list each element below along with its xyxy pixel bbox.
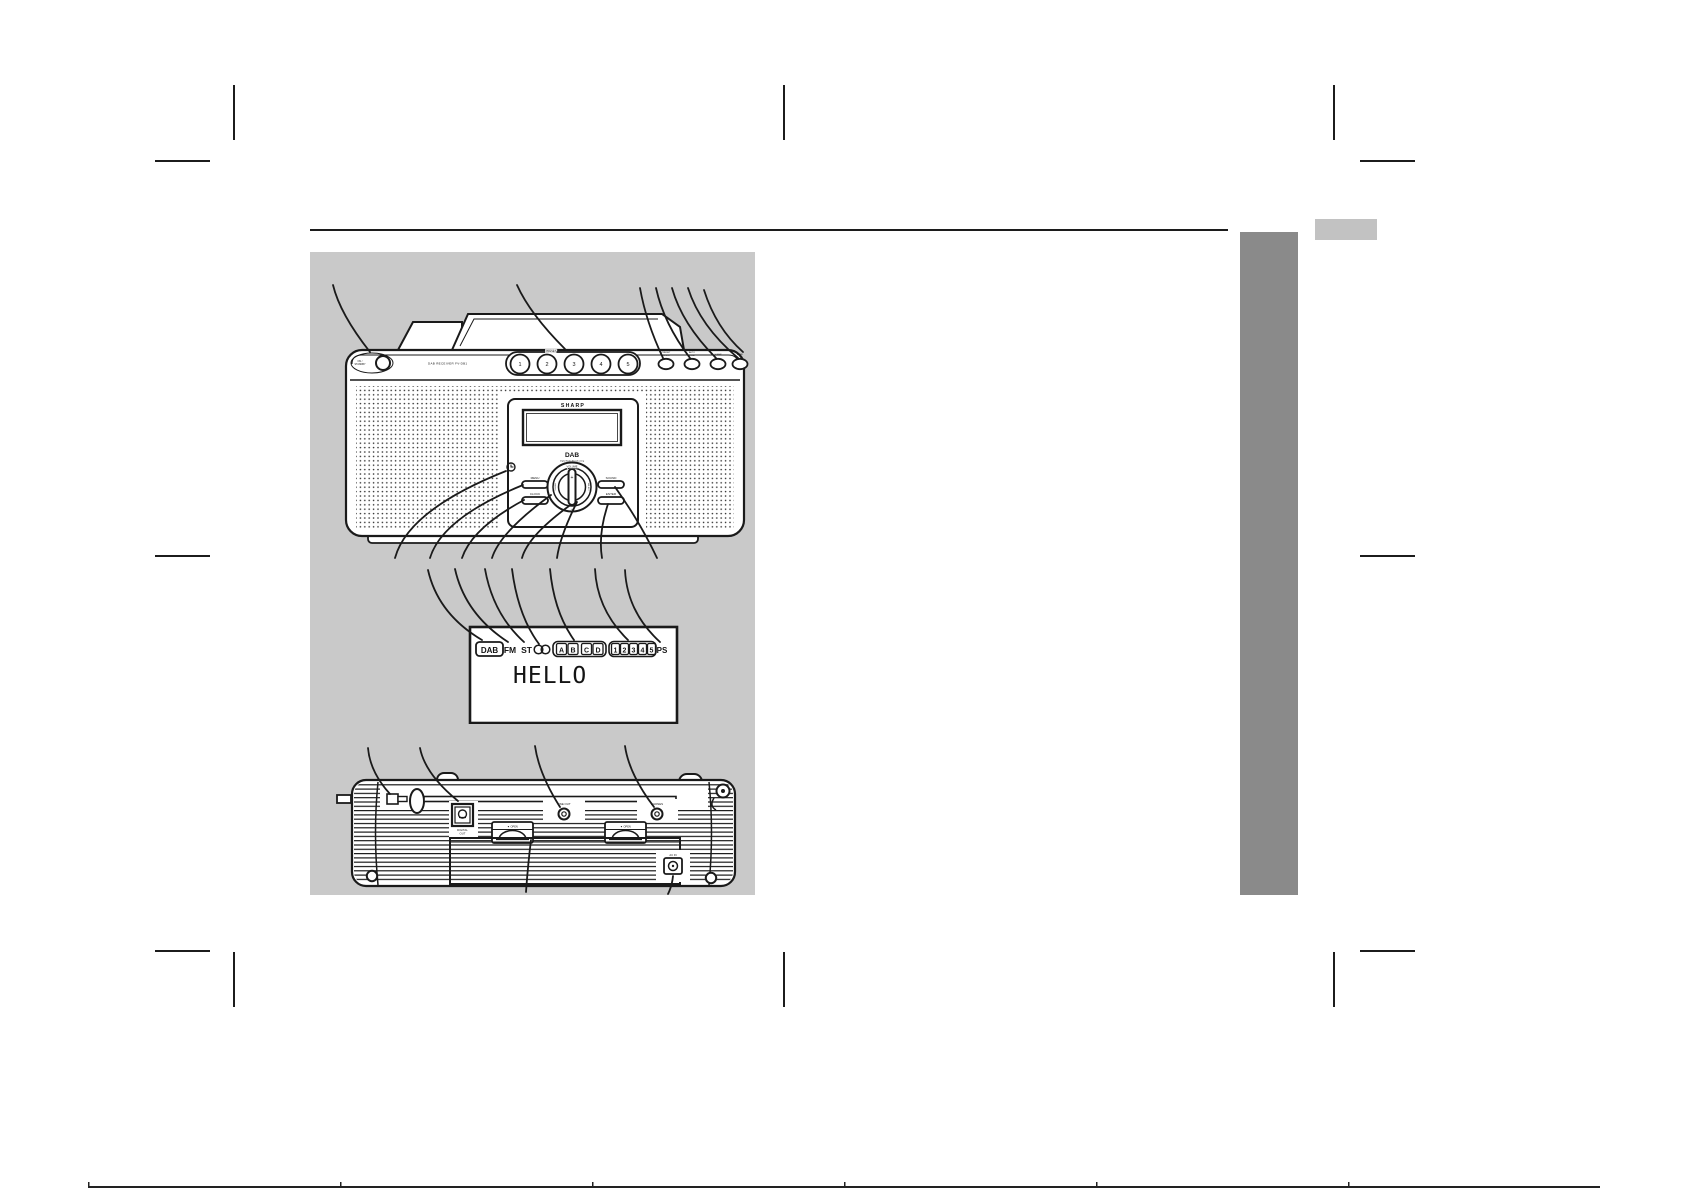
latch-right-label: ▼ OPEN [620,825,631,829]
tuning-label: TUNING [555,483,557,492]
rear-view-diagram: DIGITAL OUT LINE OUT PHONES ▼ OPEN [310,724,755,895]
crop-mark-left-1 [155,160,210,162]
preset-3: 3 [572,362,575,368]
crop-mark-bottom-left [233,952,235,1007]
ps-indicator: PS [657,646,668,655]
btn3-l1: SLEEP [714,354,722,356]
crop-mark-bottom-center [783,952,785,1007]
digit-2: 2 [623,648,627,655]
digit-3: 3 [632,648,636,655]
fm-indicator: FM [504,645,516,655]
btn4-l1: BAND [737,353,743,356]
btn2-l1: AUTO [689,351,695,354]
digit-indicators: 1 2 3 4 5 [609,642,656,657]
st-indicator: ST [521,645,533,655]
preset-button-group: PRESET 1 2 3 4 5 [506,349,640,375]
page-bottom-edge [88,1182,1600,1188]
clock-label: CLOCK [530,492,540,496]
preset-1: 1 [518,362,521,368]
letter-a: A [559,648,564,655]
display-view-diagram: DAB FM ST A B C D [310,564,755,724]
crop-mark-bottom-right [1333,952,1335,1007]
preset-2: 2 [545,362,548,368]
sound-label: SOUND [606,476,618,480]
crop-mark-right-2 [1360,555,1415,557]
digit-4: 4 [641,648,645,655]
section-sidebar [1240,232,1298,895]
volume-tuning-knob: VOLUME + − TUNING SELECT [548,463,597,512]
carry-handle [398,314,684,350]
digit-1: 1 [614,648,618,655]
enter-label: ENTER [606,492,617,496]
letter-c: C [584,648,589,655]
battery-latch-right: ▼ OPEN [605,822,646,843]
letter-b: B [570,648,575,655]
model-text: DAB RECEIVER FV-DB1 [428,362,467,366]
digit-5: 5 [650,648,654,655]
header-rule [310,229,1228,231]
diagram-panel: ON / STANDBY DAB RECEIVER FV-DB1 PRESET … [310,252,755,895]
crop-mark-left-2 [155,555,210,557]
enter-button [598,497,624,504]
btn1-l1: PRESET [662,352,671,354]
dab-logo: DAB [565,452,579,459]
battery-latch-left: ▼ OPEN [492,822,533,843]
latch-left-label: ▼ OPEN [507,825,518,829]
select-label: SELECT [587,483,589,492]
volume-label: VOLUME [567,465,578,469]
preset-4: 4 [599,362,602,368]
control-panel: SHARP DAB Digital Audio Broadcasting MEN… [507,399,638,527]
crop-mark-top-center [783,85,785,140]
crop-mark-top-left [233,85,235,140]
manual-page: ON / STANDBY DAB RECEIVER FV-DB1 PRESET … [0,0,1685,1191]
sharp-logo: SHARP [561,403,585,409]
crop-mark-right-3 [1360,950,1415,952]
lcd-window [523,410,621,445]
digital-out-label2: OUT [460,832,466,836]
menu-label: MENU [531,476,540,480]
ac-in-label: AC IN [669,853,676,857]
menu-button [522,481,548,488]
foot-right [706,873,716,883]
crop-mark-top-right [1333,85,1335,140]
letter-d: D [595,648,600,655]
page-index-tab [1315,219,1377,240]
lcd-text: HELLO [513,663,587,689]
crop-mark-left-3 [155,950,210,952]
front-view-diagram: ON / STANDBY DAB RECEIVER FV-DB1 PRESET … [310,252,755,564]
sound-button [598,481,624,488]
dab-indicator: DAB [481,646,499,655]
foot-left [367,871,377,881]
plus-label: + [571,475,574,481]
crop-mark-right-1 [1360,160,1415,162]
preset-label: PRESET [546,349,557,353]
preset-5: 5 [626,362,629,368]
power-label2: STANDBY [354,363,366,366]
